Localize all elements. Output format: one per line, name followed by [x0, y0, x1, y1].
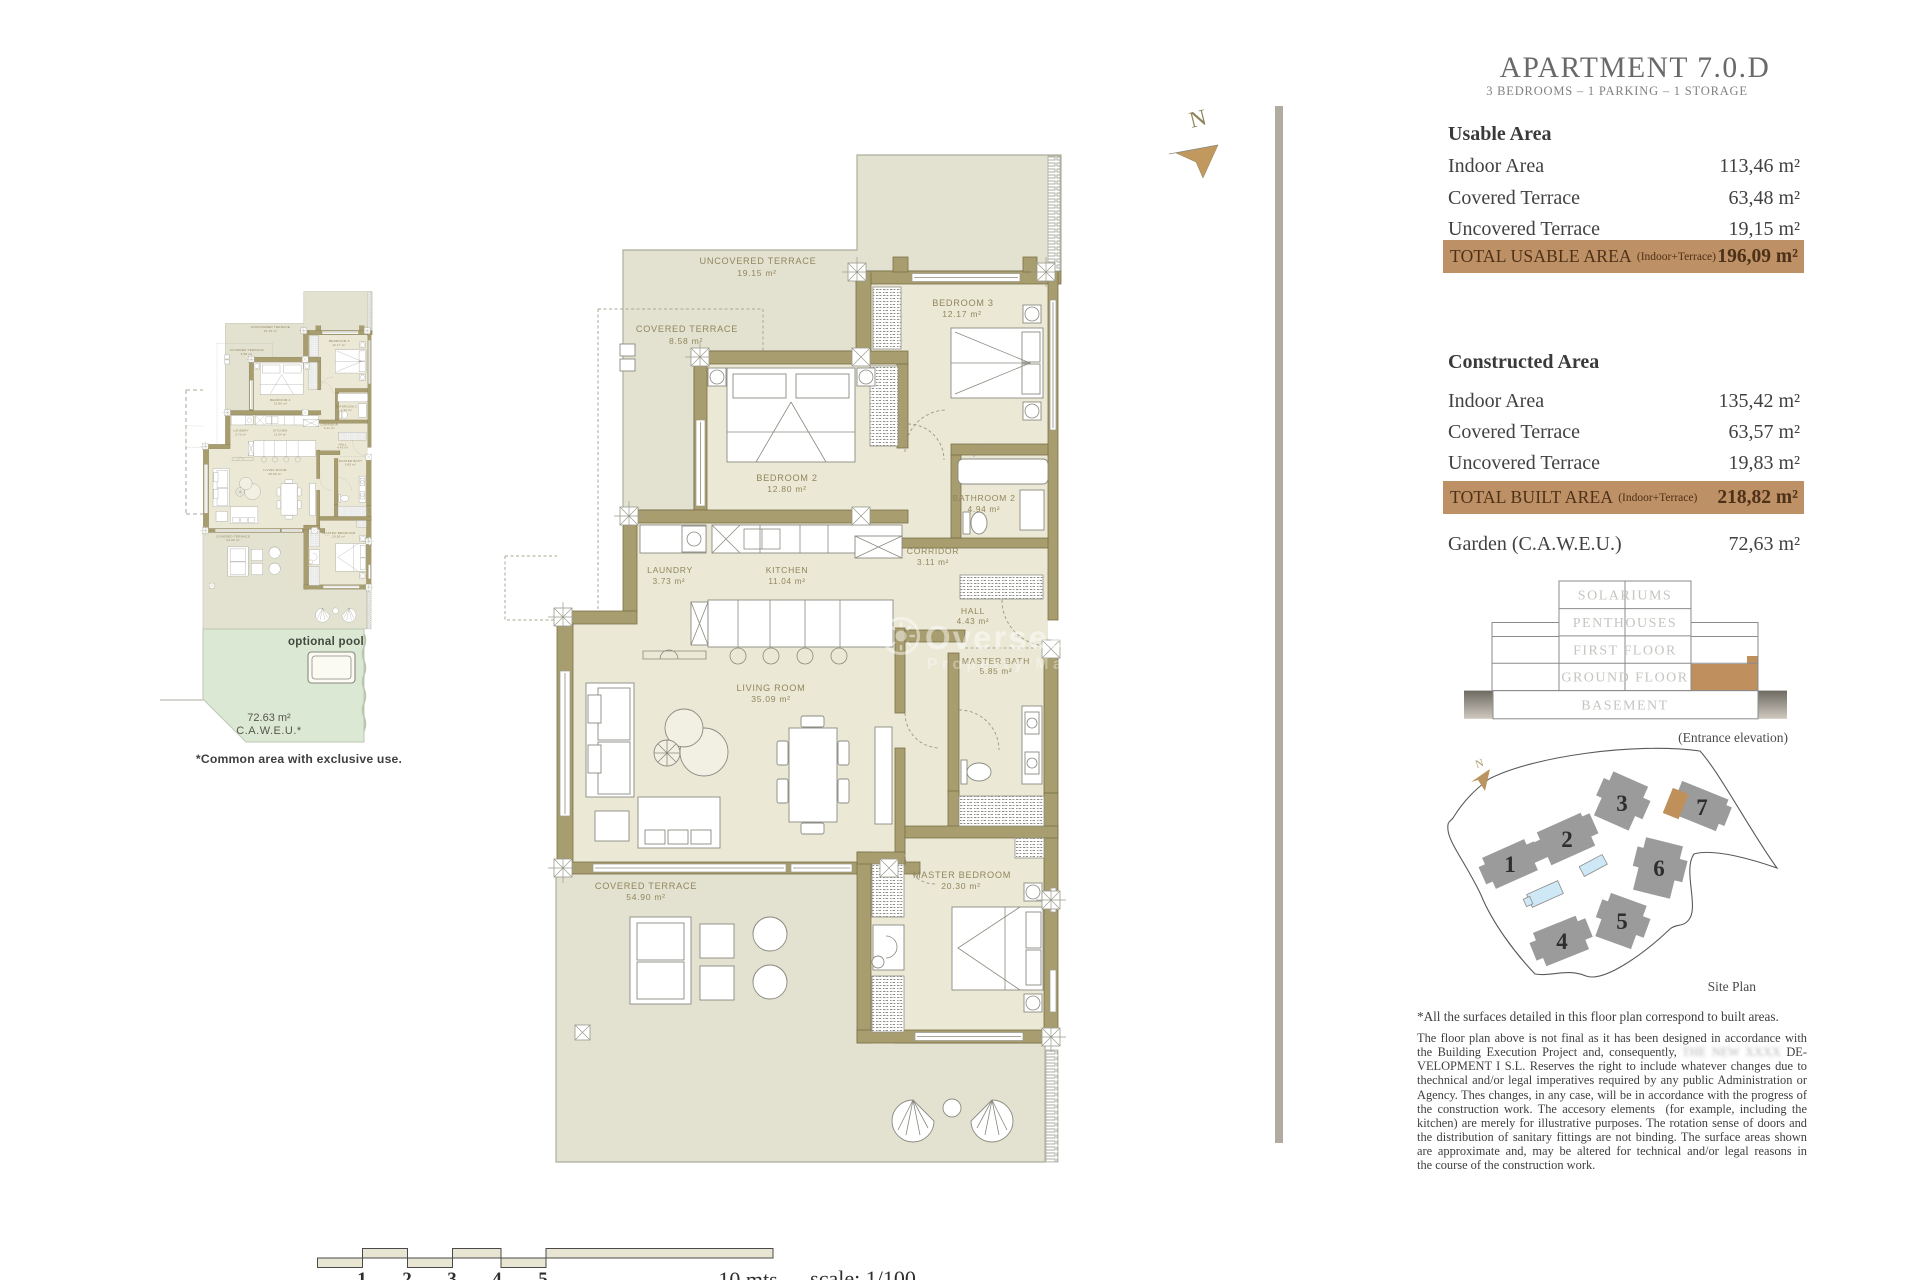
svg-text:12.80 m²: 12.80 m²	[767, 484, 807, 494]
svg-text:Property Market: Property Market	[927, 656, 1113, 673]
svg-text:BATHROOM 2: BATHROOM 2	[952, 493, 1015, 503]
svg-text:SOLARIUMS: SOLARIUMS	[1578, 589, 1672, 604]
svg-text:4.94 m²: 4.94 m²	[968, 505, 1001, 514]
svg-text:KITCHEN: KITCHEN	[766, 565, 809, 575]
svg-text:5: 5	[538, 1269, 548, 1280]
svg-text:optional pool: optional pool	[288, 636, 364, 648]
svg-text:COVERED TERRACE: COVERED TERRACE	[636, 324, 738, 334]
svg-text:1: 1	[1504, 852, 1516, 877]
svg-text:HALL: HALL	[961, 606, 985, 616]
svg-text:LAUNDRY: LAUNDRY	[647, 565, 693, 575]
svg-text:3.11 m²: 3.11 m²	[917, 558, 949, 567]
svg-text:4: 4	[1556, 929, 1568, 954]
svg-text:BASEMENT: BASEMENT	[1581, 699, 1668, 714]
svg-text:FIRST FLOOR: FIRST FLOOR	[1573, 644, 1677, 659]
svg-text:BEDROOM 2: BEDROOM 2	[756, 473, 817, 483]
svg-text:1: 1	[357, 1269, 367, 1280]
svg-text:3.73 m²: 3.73 m²	[653, 577, 686, 586]
svg-text:Site Plan: Site Plan	[1708, 979, 1757, 994]
svg-text:72.63 m²: 72.63 m²	[247, 712, 291, 724]
svg-text:3: 3	[1616, 791, 1628, 816]
svg-text:20.30 m²: 20.30 m²	[941, 881, 981, 891]
svg-text:6: 6	[1653, 856, 1665, 881]
svg-text:COVERED TERRACE: COVERED TERRACE	[595, 881, 697, 891]
svg-text:scale: 1/100: scale: 1/100	[810, 1266, 916, 1280]
svg-text:C.A.W.E.U.*: C.A.W.E.U.*	[236, 725, 302, 737]
svg-text:*Common area with exclusive us: *Common area with exclusive use.	[196, 752, 402, 766]
svg-text:12.17 m²: 12.17 m²	[942, 309, 982, 319]
svg-text:2: 2	[402, 1269, 412, 1280]
svg-text:Overseas: Overseas	[925, 619, 1090, 656]
svg-text:N: N	[1474, 757, 1485, 771]
svg-text:BEDROOM 3: BEDROOM 3	[932, 298, 993, 308]
svg-text:4: 4	[492, 1269, 502, 1280]
svg-text:CORRIDOR: CORRIDOR	[907, 546, 959, 556]
svg-text:8.58 m²: 8.58 m²	[669, 336, 703, 346]
svg-text:10 mts: 10 mts	[718, 1267, 777, 1280]
svg-text:GROUND FLOOR: GROUND FLOOR	[1561, 671, 1688, 686]
svg-text:PENTHOUSES: PENTHOUSES	[1573, 616, 1677, 631]
svg-text:11.04 m²: 11.04 m²	[768, 577, 805, 586]
svg-text:MASTER BEDROOM: MASTER BEDROOM	[913, 870, 1011, 880]
svg-text:(Entrance elevation): (Entrance elevation)	[1678, 730, 1788, 745]
svg-text:N: N	[1187, 104, 1210, 132]
svg-text:LIVING ROOM: LIVING ROOM	[737, 683, 806, 693]
svg-text:19.15 m²: 19.15 m²	[737, 268, 777, 278]
svg-text:7: 7	[1696, 795, 1708, 820]
svg-text:5: 5	[1616, 909, 1628, 934]
svg-text:54.90 m²: 54.90 m²	[626, 892, 666, 902]
svg-text:2: 2	[1561, 827, 1573, 852]
svg-text:UNCOVERED TERRACE: UNCOVERED TERRACE	[700, 256, 817, 266]
svg-text:3: 3	[447, 1269, 457, 1280]
svg-text:35.09 m²: 35.09 m²	[751, 694, 791, 704]
